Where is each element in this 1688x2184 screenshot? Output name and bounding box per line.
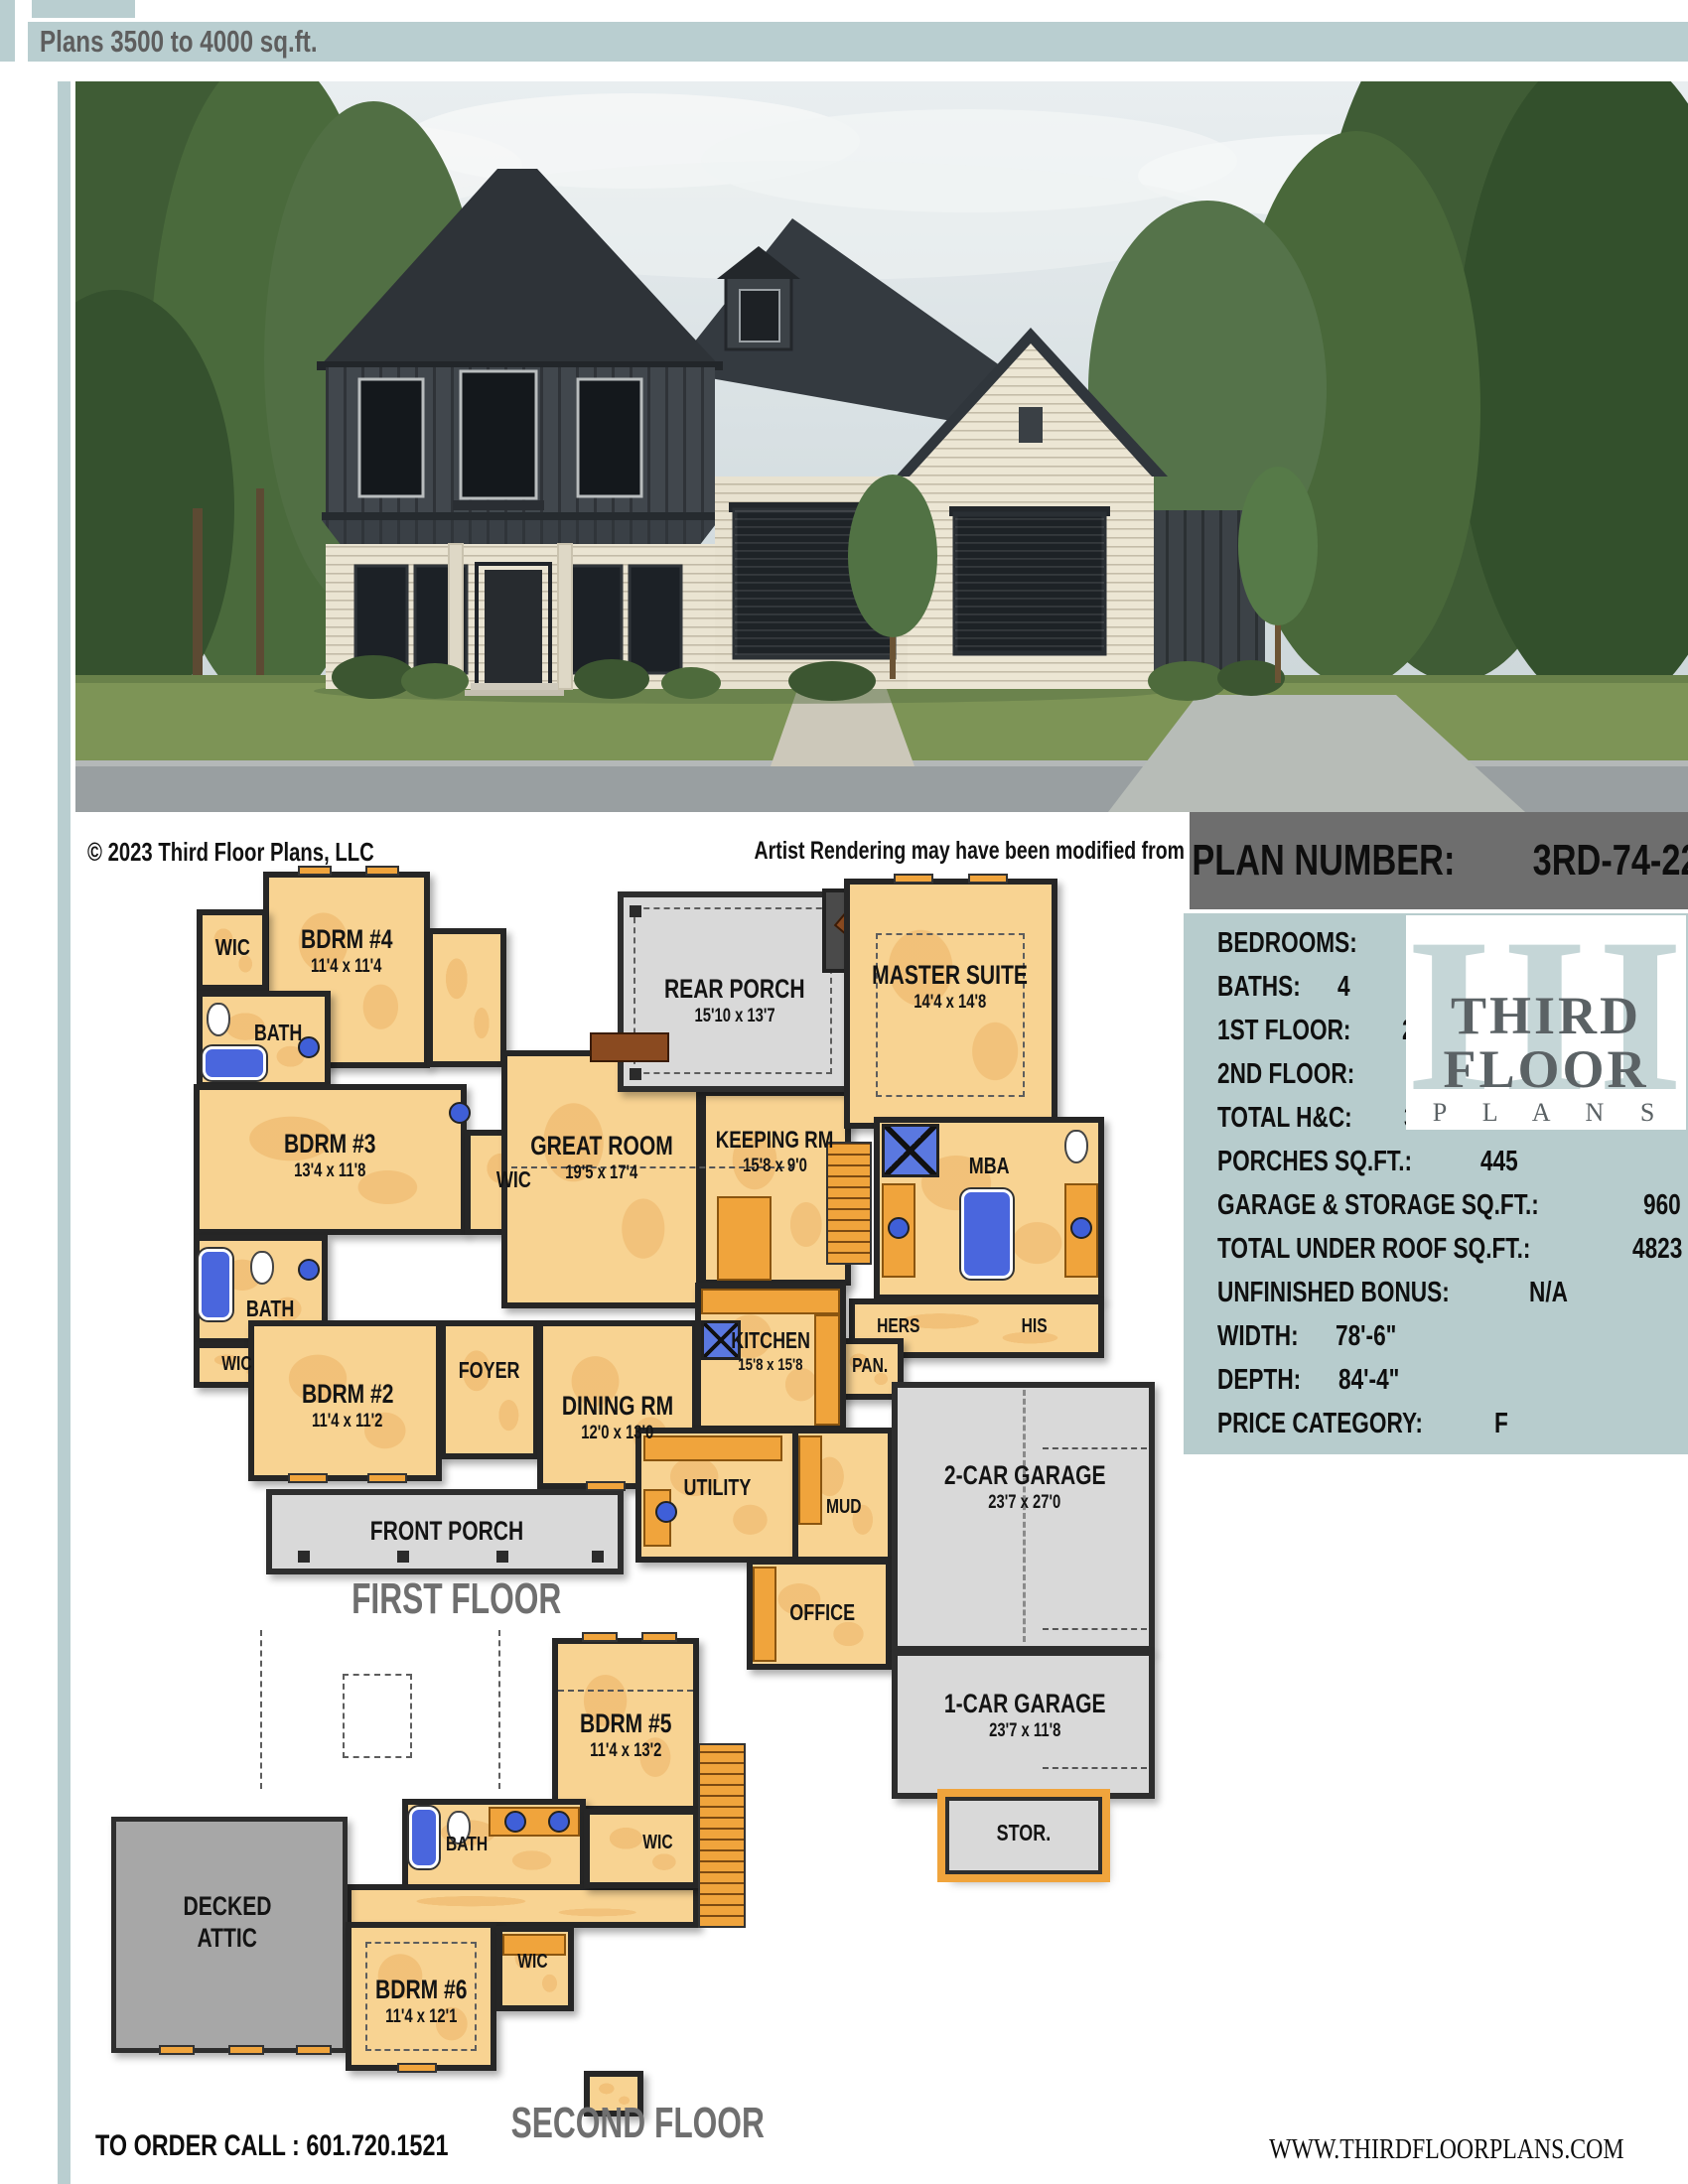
great-room-fireplace (590, 1032, 669, 1062)
spec-baths: BATHS:4 (1217, 965, 1354, 1009)
utility-sink (655, 1501, 677, 1523)
header-band: Plans 3500 to 4000 sq.ft. (28, 22, 1688, 62)
spec-depth: DEPTH:84'-4" (1217, 1358, 1417, 1402)
logo-word-third: THIRD (1406, 985, 1686, 1046)
edge-accent-stripe (0, 0, 15, 62)
brochure-page: { "header": { "title": "Plans 3500 to 40… (0, 0, 1688, 2184)
label-garage2: 2-CAR GARAGE23'7 x 27'0 (896, 1461, 1154, 1514)
spec-panel: BEDROOMS:6 BATHS:4 1ST FLOOR:2774 2ND FL… (1184, 913, 1688, 1454)
garage-attic-dash-3 (1043, 1767, 1147, 1769)
label-wic6: WIC (403, 1952, 661, 1974)
website-text: WWW.THIRDFLOORPLANS.COM (1192, 2134, 1624, 2166)
mba-tub (961, 1189, 1013, 1279)
label-wic4: WIC (103, 935, 361, 960)
spec-price-category: PRICE CATEGORY:F (1217, 1402, 1512, 1445)
master-ceiling-dash (876, 933, 1025, 1097)
plan-number-value: 3RD-74-22 (1533, 836, 1688, 886)
label-utility: UTILITY (588, 1475, 846, 1500)
mba-sink-right (1070, 1217, 1092, 1239)
rear-porch-post (630, 1068, 641, 1080)
attic-tab (228, 2045, 264, 2055)
spec-width: WIDTH:78'-6" (1217, 1314, 1413, 1358)
order-phone-text: TO ORDER CALL : 601.720.1521 (95, 2129, 548, 2163)
kitchen-island (717, 1196, 772, 1281)
label-decked-attic: DECKEDATTIC (98, 1892, 356, 1953)
label-bath4: BATH (149, 1021, 407, 1045)
label-garage1: 1-CAR GARAGE23'7 x 11'8 (896, 1690, 1154, 1742)
window-tab (288, 1473, 328, 1483)
footprint-dash-line (260, 1630, 262, 1789)
window-tab (582, 1632, 618, 1642)
bath4-tub (203, 1046, 266, 1080)
plan-number-label: PLAN NUMBER: (1192, 836, 1455, 886)
bath2-toilet (250, 1251, 274, 1285)
label-dining: DINING RM12'0 x 13'0 (489, 1392, 747, 1444)
garage-attic-dash-1 (1043, 1447, 1147, 1449)
spec-porches: PORCHES SQ.FT.:445 (1217, 1140, 1529, 1183)
porch-post (592, 1551, 604, 1563)
label-wic2: WIC (107, 1354, 365, 1376)
spec-garage-storage: GARAGE & STORAGE SQ.FT.:960 (1217, 1183, 1688, 1227)
window-tab (365, 866, 399, 876)
label-bdrm5: BDRM #511'4 x 13'2 (496, 1709, 755, 1762)
corner-accent-square (32, 0, 135, 18)
attic-tab (159, 2045, 195, 2055)
spec-unfinished-bonus: UNFINISHED BONUS:N/A (1217, 1271, 1579, 1314)
copyright-text: © 2023 Third Floor Plans, LLC (87, 837, 455, 868)
house-photo (75, 81, 1688, 812)
bdrm5-ceiling-dash (558, 1690, 693, 1692)
window-tab (298, 866, 332, 876)
bath5-sink-left (504, 1811, 526, 1833)
window-tab (397, 2063, 437, 2073)
window-tab (367, 1473, 407, 1483)
footprint-dash-rect (343, 1674, 412, 1758)
garage-attic-dash-2 (1043, 1628, 1147, 1630)
label-kitchen: KITCHEN15'8 x 15'8 (641, 1328, 900, 1374)
porch-post (298, 1551, 310, 1563)
label-bdrm6: BDRM #611'4 x 12'1 (292, 1976, 550, 2028)
label-mba: MBA (860, 1154, 1118, 1178)
label-master: MASTER SUITE14'4 x 14'8 (821, 961, 1079, 1014)
window-tab (894, 874, 933, 884)
logo-word-plans: P L A N S (1406, 1098, 1686, 1128)
window-tab (641, 1632, 677, 1642)
page-title: Plans 3500 to 4000 sq.ft. (40, 22, 318, 62)
rendering-disclaimer: Artist Rendering may have been modified … (596, 837, 1188, 866)
third-floor-plans-logo: III THIRD FLOOR P L A N S (1406, 915, 1686, 1130)
spec-total-under-roof: TOTAL UNDER ROOF SQ.FT.:4823 (1217, 1227, 1688, 1271)
rear-porch-post (630, 905, 641, 917)
porch-post (496, 1551, 508, 1563)
logo-word-floor: FLOOR (1406, 1038, 1686, 1100)
garage2-center-dash (1023, 1390, 1026, 1642)
first-floor-title: FIRST FLOOR (258, 1574, 655, 1624)
label-front-porch: FRONT PORCH (318, 1517, 576, 1546)
label-stor: STOR. (895, 1821, 1153, 1845)
label-bdrm2: BDRM #211'4 x 11'2 (218, 1380, 477, 1433)
ground (75, 675, 1688, 812)
bath5-sink-right (548, 1811, 570, 1833)
spec-bedrooms: BEDROOMS:6 (1217, 921, 1427, 965)
mba-sink-left (888, 1217, 910, 1239)
bath2-sink (298, 1259, 320, 1281)
left-accent-line (58, 81, 70, 2184)
label-his: HIS (906, 1316, 1164, 1338)
attic-tab (296, 2045, 332, 2055)
hall-bath-sink (449, 1102, 471, 1124)
label-bath2: BATH (141, 1297, 399, 1321)
label-office: OFFICE (693, 1600, 951, 1625)
label-wic5: WIC (528, 1833, 786, 1854)
house-rendering (75, 81, 1688, 812)
window-tab (968, 874, 1008, 884)
porch-post (397, 1551, 409, 1563)
kitchen-counter-top (701, 1289, 840, 1314)
label-foyer: FOYER (360, 1358, 619, 1383)
